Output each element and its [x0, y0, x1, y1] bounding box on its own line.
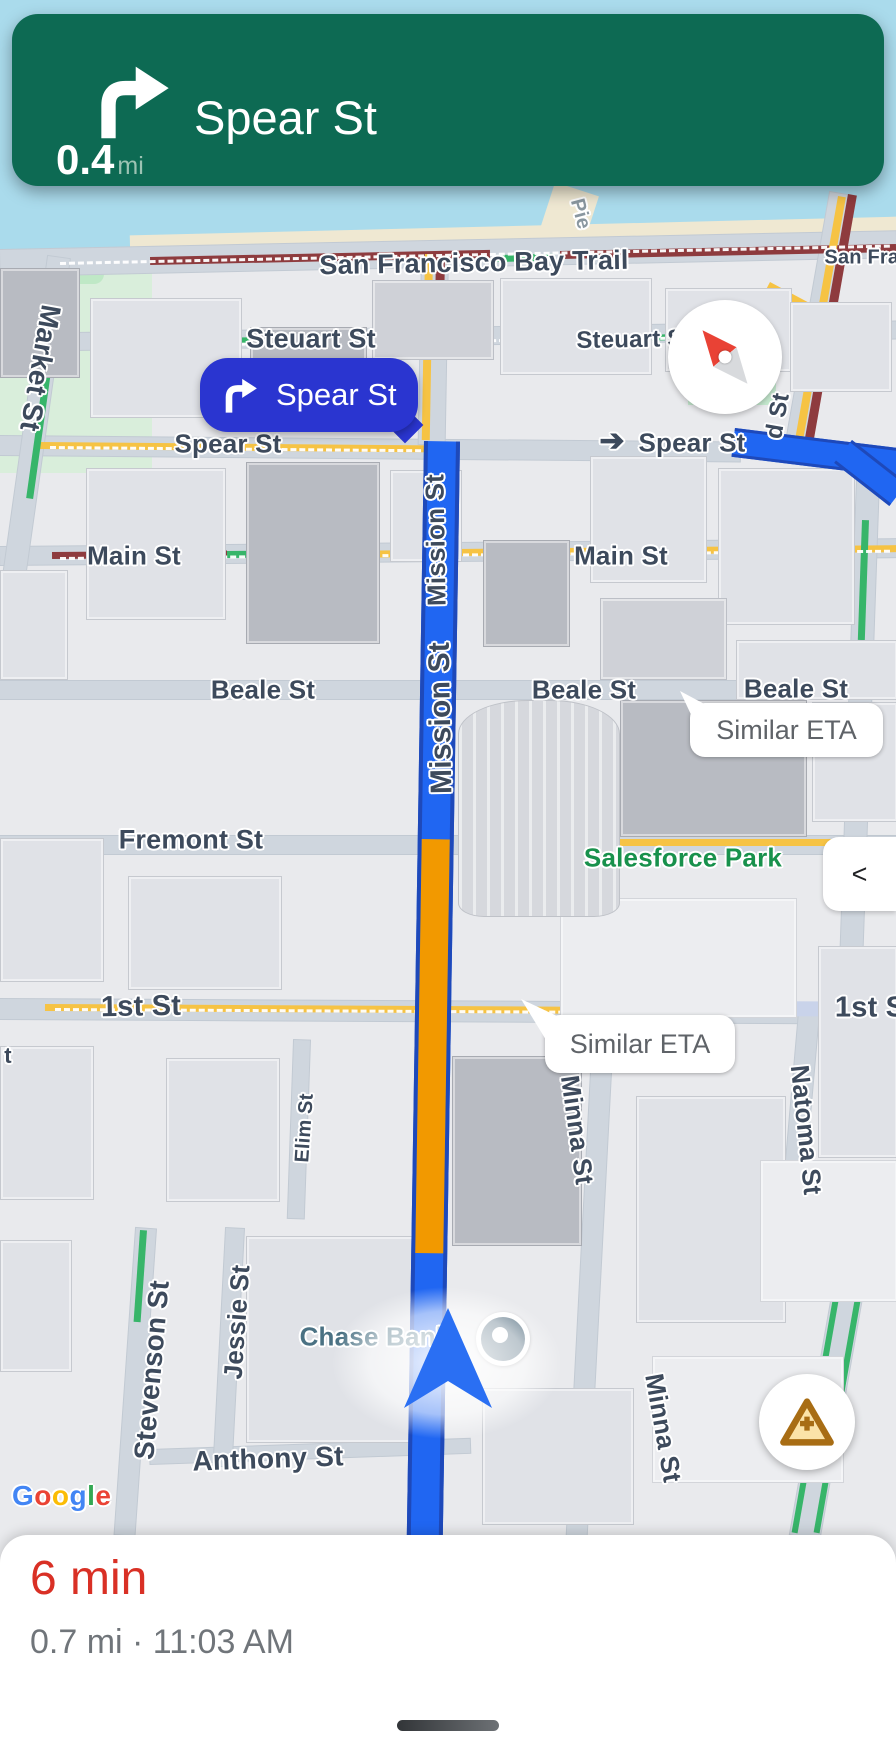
map-label-market-st-fragment: t — [4, 1043, 12, 1069]
map-label-beale-st-mid: Beale St — [532, 675, 636, 706]
distance-value: 0.4 — [56, 136, 114, 183]
distance-unit: mi — [117, 152, 143, 180]
google-logo-letter: g — [70, 1480, 88, 1511]
map-label-main-st-right: Main St — [574, 541, 668, 572]
google-logo-letter: G — [12, 1480, 34, 1511]
google-logo-letter: o — [34, 1480, 52, 1511]
map-label-jessie-st: Jessie St — [218, 1264, 257, 1380]
street-labels: Market StPieSan Francisco Bay TrailSan F… — [0, 0, 896, 1747]
map-label-pier: Pie — [565, 196, 595, 232]
map-label-san-fran: San Fran — [824, 247, 896, 270]
collapse-panel-button[interactable]: < — [823, 837, 896, 911]
map-label-natoma-st: Natoma St — [784, 1064, 828, 1197]
warning-add-icon — [778, 1395, 836, 1449]
map-canvas[interactable]: Market StPieSan Francisco Bay TrailSan F… — [0, 0, 896, 1747]
map-label-fremont-st: Fremont St — [119, 825, 264, 856]
compass-needle-icon — [689, 319, 762, 396]
map-label-beale-st-right: Beale St — [744, 674, 848, 705]
turn-right-icon — [84, 58, 176, 144]
drag-handle[interactable] — [397, 1720, 499, 1731]
map-label-howard-st-fragment: d St — [760, 391, 796, 441]
turn-right-icon — [218, 373, 262, 417]
map-label-salesforce-park: Salesforce Park — [584, 843, 782, 874]
compass-button[interactable] — [668, 300, 782, 414]
banner-street-name: Spear St — [194, 90, 377, 145]
map-label-first-st-left: 1st St — [101, 990, 182, 1024]
map-label-mission-st: Mission St — [423, 642, 460, 795]
map-label-anthony-st: Anthony St — [192, 1440, 344, 1477]
map-label-steuart-st-left: Steuart St — [246, 324, 376, 355]
similar-eta-text: Similar ETA — [716, 715, 857, 746]
map-label-sf-bay-trail: San Francisco Bay Trail — [319, 245, 629, 281]
map-label-main-st-left: Main St — [87, 541, 181, 572]
map-label-mission-st-upper: Mission St — [419, 474, 452, 607]
trip-details: 0.7 mi · 11:03 AM — [30, 1623, 294, 1662]
similar-eta-text: Similar ETA — [570, 1029, 711, 1060]
maneuver-distance: 0.4mi — [56, 136, 144, 184]
similar-eta-bubble-2[interactable]: Similar ETA — [545, 1015, 735, 1073]
trip-bottom-sheet[interactable]: 6 min 0.7 mi · 11:03 AM — [0, 1535, 896, 1747]
google-logo-letter: o — [52, 1480, 70, 1511]
map-label-first-st-right: 1st St — [835, 992, 896, 1025]
map-label-elim-st: Elim St — [291, 1093, 319, 1164]
google-logo-letter: e — [95, 1480, 111, 1511]
map-label-minna-st-lower: Minna St — [638, 1371, 688, 1485]
turn-callout-street: Spear St — [276, 377, 397, 413]
navigation-banner[interactable]: 0.4mi Spear St — [12, 14, 884, 186]
chevron-left-icon: < — [852, 859, 868, 890]
map-label-spear-st-right: Spear St — [638, 428, 745, 459]
map-label-spear-st-left: Spear St — [174, 429, 281, 460]
map-label-beale-st-left: Beale St — [211, 675, 315, 706]
map-label-spear-turn-arrow: ➔ — [599, 424, 624, 459]
similar-eta-bubble-1[interactable]: Similar ETA — [690, 703, 883, 757]
turn-callout: Spear St — [200, 358, 418, 432]
map-label-market-st: Market St — [13, 302, 67, 433]
report-incident-button[interactable] — [759, 1374, 855, 1470]
eta-time: 6 min — [30, 1551, 147, 1606]
map-label-stevenson-st: Stevenson St — [128, 1279, 176, 1461]
map-label-minna-st-upper: Minna St — [554, 1073, 600, 1186]
google-logo: Google — [12, 1480, 111, 1512]
